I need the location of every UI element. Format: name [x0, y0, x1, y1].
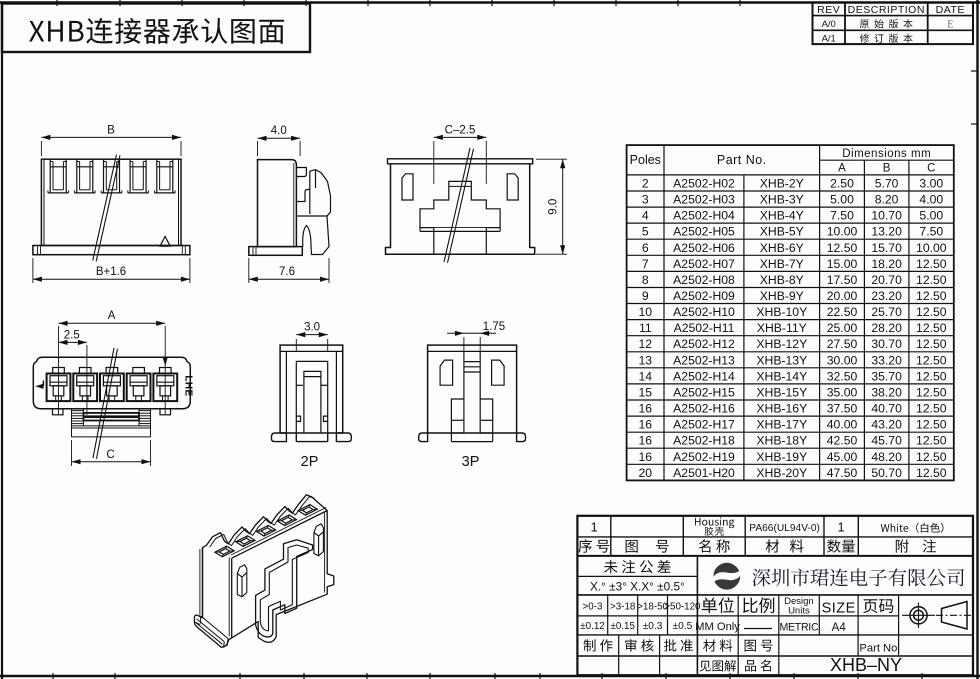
svg-text:C: C — [106, 449, 114, 461]
svg-text:12.50: 12.50 — [916, 305, 947, 319]
svg-text:MM Only: MM Only — [695, 621, 740, 633]
svg-text:4: 4 — [642, 209, 649, 223]
svg-text:5.00: 5.00 — [830, 193, 854, 207]
svg-text:15.00: 15.00 — [827, 257, 858, 271]
svg-text:A2502-H15: A2502-H15 — [673, 386, 735, 400]
svg-text:A2502-H10: A2502-H10 — [673, 305, 735, 319]
svg-text:A/0: A/0 — [822, 19, 836, 30]
svg-text:37.50: 37.50 — [827, 402, 858, 416]
svg-text:±0.15: ±0.15 — [610, 621, 635, 632]
svg-text:1: 1 — [837, 520, 844, 535]
svg-text:A2502-H18: A2502-H18 — [673, 434, 735, 448]
svg-text:12.50: 12.50 — [916, 369, 947, 383]
svg-text:Dimensions mm: Dimensions mm — [842, 148, 931, 160]
svg-text:A2502-H11: A2502-H11 — [674, 321, 735, 335]
svg-text:10.00: 10.00 — [916, 241, 947, 255]
svg-text:16: 16 — [639, 450, 653, 464]
svg-text:25.70: 25.70 — [871, 305, 902, 319]
svg-text:XHB-15Y: XHB-15Y — [756, 386, 807, 400]
svg-text:XHB-10Y: XHB-10Y — [756, 305, 807, 319]
svg-text:12.50: 12.50 — [916, 386, 947, 400]
svg-text:XHB-14Y: XHB-14Y — [756, 369, 807, 383]
svg-text:>50-120: >50-120 — [664, 601, 701, 612]
svg-text:12.50: 12.50 — [916, 353, 947, 367]
svg-text:A2502-H08: A2502-H08 — [673, 273, 735, 287]
svg-text:9: 9 — [642, 289, 649, 303]
svg-text:DATE: DATE — [936, 4, 965, 16]
svg-text:12: 12 — [639, 337, 653, 351]
svg-text:5.70: 5.70 — [875, 176, 899, 190]
svg-text:XHB-17Y: XHB-17Y — [756, 418, 807, 432]
svg-text:8: 8 — [642, 273, 649, 287]
svg-text:8.20: 8.20 — [875, 193, 899, 207]
svg-text:40.70: 40.70 — [871, 402, 902, 416]
svg-text:40.00: 40.00 — [827, 418, 858, 432]
svg-text:20.70: 20.70 — [871, 273, 902, 287]
svg-text:XHB-18Y: XHB-18Y — [756, 434, 807, 448]
svg-text:7.6: 7.6 — [279, 266, 295, 278]
svg-text:Part No: Part No — [859, 643, 897, 655]
svg-text:6: 6 — [642, 241, 649, 255]
svg-text:A/1: A/1 — [822, 33, 836, 44]
svg-text:2P: 2P — [301, 454, 319, 470]
svg-text:XHB-20Y: XHB-20Y — [756, 466, 807, 480]
svg-text:45.70: 45.70 — [871, 434, 902, 448]
svg-text:25.00: 25.00 — [827, 321, 858, 335]
svg-text:A2502-H13: A2502-H13 — [673, 353, 735, 367]
svg-text:A2502-H14: A2502-H14 — [673, 369, 735, 383]
svg-text:XHB-8Y: XHB-8Y — [760, 273, 804, 287]
svg-text:12.50: 12.50 — [916, 466, 947, 480]
svg-text:C: C — [927, 163, 935, 175]
svg-text:XHB-3Y: XHB-3Y — [760, 193, 804, 207]
svg-text:32.50: 32.50 — [827, 369, 858, 383]
svg-text:3.00: 3.00 — [919, 176, 943, 190]
svg-text:XHB-12Y: XHB-12Y — [756, 337, 807, 351]
svg-text:A2502-H03: A2502-H03 — [673, 193, 735, 207]
svg-text:>0-3: >0-3 — [583, 601, 603, 612]
svg-text:XHB-6Y: XHB-6Y — [760, 241, 804, 255]
svg-text:14: 14 — [639, 369, 653, 383]
svg-text:±0.5: ±0.5 — [673, 621, 693, 632]
svg-text:16: 16 — [639, 434, 653, 448]
svg-text:12.50: 12.50 — [916, 418, 947, 432]
svg-text:18.20: 18.20 — [871, 257, 902, 271]
svg-text:Part No.: Part No. — [717, 153, 767, 167]
svg-text:B: B — [107, 125, 115, 137]
svg-text:10.00: 10.00 — [827, 225, 858, 239]
svg-text:METRIC: METRIC — [779, 621, 818, 633]
svg-text:A2502-H04: A2502-H04 — [673, 209, 735, 223]
svg-text:15.70: 15.70 — [871, 241, 902, 255]
svg-text:30.70: 30.70 — [871, 337, 902, 351]
svg-text:±0.12: ±0.12 — [580, 621, 604, 632]
svg-text:5: 5 — [642, 225, 649, 239]
svg-text:10: 10 — [639, 305, 653, 319]
svg-text:12.50: 12.50 — [827, 241, 858, 255]
svg-text:4.0: 4.0 — [271, 125, 287, 137]
svg-text:LHE: LHE — [182, 375, 193, 396]
svg-text:42.50: 42.50 — [827, 434, 858, 448]
svg-text:>3-18: >3-18 — [610, 601, 636, 612]
svg-text:XHB-5Y: XHB-5Y — [760, 225, 804, 239]
svg-text:45.00: 45.00 — [827, 450, 858, 464]
svg-text:2.5: 2.5 — [64, 330, 80, 342]
svg-text:28.20: 28.20 — [871, 321, 902, 335]
svg-text:A: A — [108, 310, 116, 322]
svg-text:48.20: 48.20 — [871, 450, 902, 464]
svg-text:XHB-2Y: XHB-2Y — [760, 176, 804, 190]
svg-text:16: 16 — [639, 418, 653, 432]
svg-text:C–2.5: C–2.5 — [445, 125, 476, 137]
svg-text:XHB-19Y: XHB-19Y — [756, 450, 807, 464]
svg-text:35.70: 35.70 — [871, 369, 902, 383]
svg-text:30.00: 30.00 — [827, 353, 858, 367]
svg-text:13.20: 13.20 — [871, 225, 902, 239]
svg-text:4.00: 4.00 — [919, 193, 943, 207]
svg-text:XHB-11Y: XHB-11Y — [757, 321, 807, 335]
svg-text:DESCRIPTION: DESCRIPTION — [848, 4, 925, 16]
svg-text:XHB-13Y: XHB-13Y — [756, 353, 807, 367]
svg-text:7: 7 — [642, 257, 649, 271]
svg-text:11: 11 — [639, 321, 652, 335]
svg-text:12.50: 12.50 — [916, 257, 947, 271]
svg-text:12.50: 12.50 — [916, 402, 947, 416]
svg-text:1.75: 1.75 — [483, 321, 505, 333]
svg-text:5.00: 5.00 — [919, 209, 943, 223]
svg-text:2.50: 2.50 — [830, 176, 854, 190]
svg-text:12.50: 12.50 — [916, 337, 947, 351]
svg-text:10.70: 10.70 — [871, 209, 902, 223]
svg-text:SIZE: SIZE — [822, 601, 856, 617]
svg-text:Poles: Poles — [630, 153, 661, 167]
svg-text:A2502-H17: A2502-H17 — [673, 418, 735, 432]
svg-text:16: 16 — [639, 402, 653, 416]
svg-text:A4: A4 — [832, 622, 847, 634]
svg-text:23.20: 23.20 — [871, 289, 902, 303]
svg-text:50.70: 50.70 — [871, 466, 902, 480]
svg-text:15: 15 — [639, 386, 653, 400]
svg-text:A2501-H20: A2501-H20 — [673, 466, 735, 480]
svg-text:XHB-4Y: XHB-4Y — [760, 209, 804, 223]
svg-text:20: 20 — [639, 466, 653, 480]
svg-text:3.0: 3.0 — [304, 322, 320, 334]
svg-text:7.50: 7.50 — [830, 209, 854, 223]
svg-text:12.50: 12.50 — [916, 289, 947, 303]
svg-text:E: E — [947, 19, 953, 30]
svg-text:XHB-16Y: XHB-16Y — [756, 402, 807, 416]
svg-text:7.50: 7.50 — [919, 225, 943, 239]
svg-text:A2502-H05: A2502-H05 — [673, 225, 735, 239]
svg-text:PA66(UL94V-0): PA66(UL94V-0) — [749, 523, 820, 534]
svg-text:9.0: 9.0 — [548, 199, 560, 215]
svg-text:A2502-H06: A2502-H06 — [673, 241, 735, 255]
svg-text:12.50: 12.50 — [916, 273, 947, 287]
svg-text:2: 2 — [642, 176, 649, 190]
svg-text:A2502-H02: A2502-H02 — [673, 176, 735, 190]
svg-text:A2502-H16: A2502-H16 — [673, 402, 735, 416]
svg-text:17.50: 17.50 — [827, 273, 858, 287]
svg-text:22.50: 22.50 — [827, 305, 858, 319]
svg-text:3: 3 — [642, 193, 649, 207]
svg-text:33.20: 33.20 — [871, 353, 902, 367]
svg-text:X.° ±3° X.X° ±0.5°: X.° ±3° X.X° ±0.5° — [590, 579, 685, 593]
svg-text:XHB-7Y: XHB-7Y — [760, 257, 804, 271]
svg-text:B+1.6: B+1.6 — [96, 266, 126, 278]
svg-text:A2502-H19: A2502-H19 — [673, 450, 735, 464]
svg-text:43.20: 43.20 — [871, 418, 902, 432]
svg-text:47.50: 47.50 — [827, 466, 858, 480]
svg-text:A: A — [838, 163, 846, 175]
svg-text:12.50: 12.50 — [916, 321, 947, 335]
svg-text:38.20: 38.20 — [871, 386, 902, 400]
svg-text:XHB–NY: XHB–NY — [830, 655, 902, 675]
svg-text:B: B — [883, 163, 891, 175]
svg-text:REV: REV — [817, 4, 840, 16]
svg-text:20.00: 20.00 — [827, 289, 858, 303]
svg-text:A2502-H07: A2502-H07 — [673, 257, 735, 271]
svg-text:3P: 3P — [462, 454, 480, 470]
svg-text:35.00: 35.00 — [827, 386, 858, 400]
svg-text:13: 13 — [639, 353, 653, 367]
svg-text:1: 1 — [590, 520, 597, 535]
svg-text:12.50: 12.50 — [916, 450, 947, 464]
svg-text:A2502-H12: A2502-H12 — [673, 337, 735, 351]
svg-text:12.50: 12.50 — [916, 434, 947, 448]
svg-text:±0.3: ±0.3 — [643, 621, 663, 632]
svg-text:A2502-H09: A2502-H09 — [673, 289, 735, 303]
svg-text:27.50: 27.50 — [827, 337, 858, 351]
svg-text:XHB-9Y: XHB-9Y — [760, 289, 804, 303]
svg-text:Units: Units — [788, 606, 810, 617]
